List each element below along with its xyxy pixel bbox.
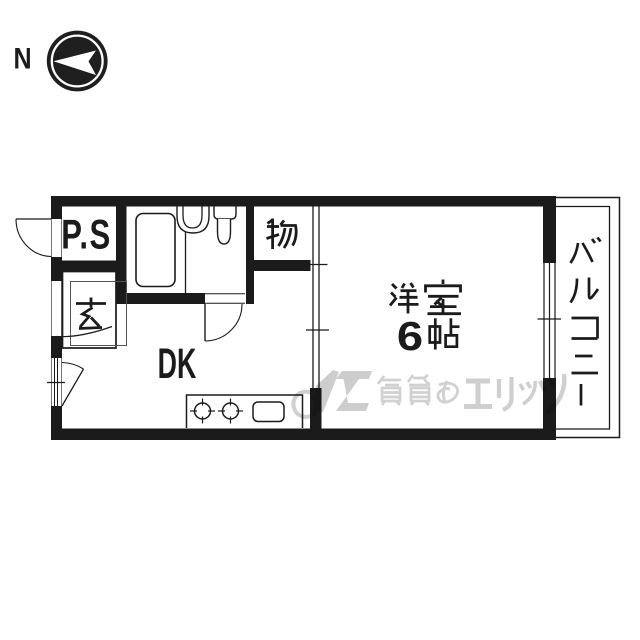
svg-text:DK: DK — [158, 340, 197, 388]
svg-text:N: N — [13, 42, 31, 75]
svg-text:P.S: P.S — [61, 211, 112, 258]
svg-text:6: 6 — [397, 314, 423, 359]
